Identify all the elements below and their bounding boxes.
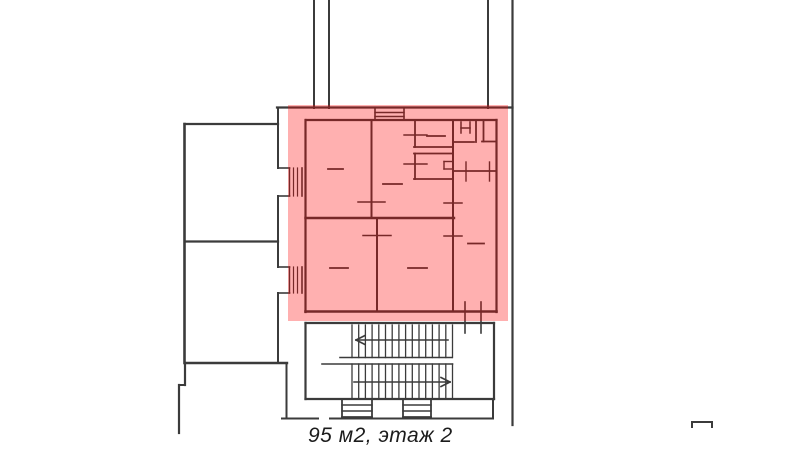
highlighted-unit-overlay [288,105,508,321]
floor-plan-canvas: 95 м2, этаж 2 [0,0,800,451]
plan-caption: 95 м2, этаж 2 [308,424,453,448]
floor-plan-drawing [0,0,800,451]
